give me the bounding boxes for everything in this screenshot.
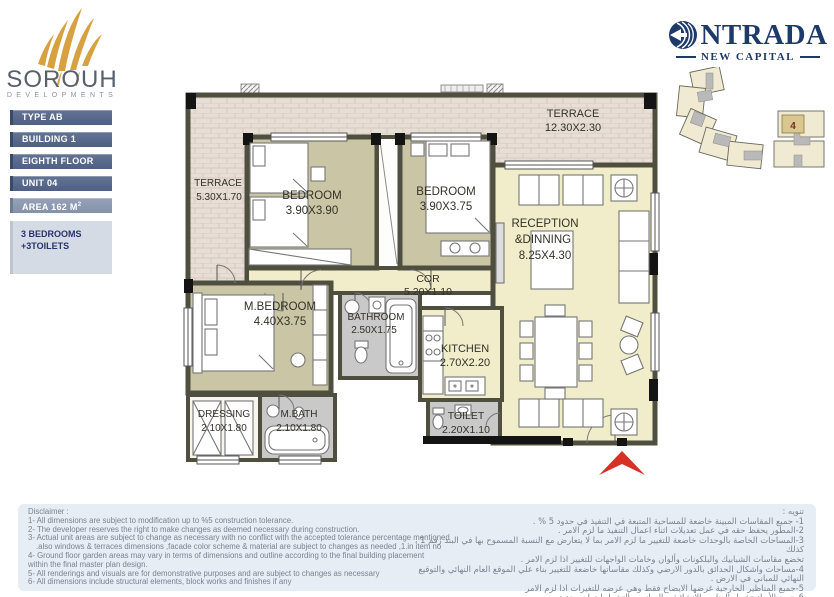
dash-right (800, 56, 820, 58)
project-logo-block: NTRADA NEW CAPITAL (664, 20, 832, 178)
plant (611, 175, 637, 201)
tv-unit (496, 223, 504, 283)
badge-type: TYPE AB (10, 110, 112, 125)
summary-line1: 3 BEDROOMS (21, 228, 112, 240)
badge-unit: UNIT 04 (10, 176, 112, 191)
label-cor-name: COR (416, 273, 440, 285)
plant (611, 409, 637, 435)
label-reception-name2: &DINNING (515, 234, 571, 246)
label-reception-dims: 8.25X4.30 (519, 250, 571, 262)
label-terrace-left-dims: 5.30X1.70 (196, 192, 242, 203)
brand-name: SOROUH (6, 66, 118, 94)
disclaimer-line-ar: 6-جميع الأبعاد تشمل العناصر الإنشائية و … (404, 593, 804, 597)
vanity (441, 241, 489, 256)
disclaimer-line: 6- All dimensions include structural ele… (28, 578, 458, 587)
label-toilet-dims: 2.20X1.10 (442, 424, 490, 436)
long-sofa (619, 211, 649, 303)
label-dressing-name: DRESSING (198, 409, 250, 420)
kitchen-sink (445, 377, 485, 395)
vent-hatch-right (487, 84, 503, 93)
project-subtitle: NEW CAPITAL (701, 51, 795, 63)
label-terrace-right-name: TERRACE (547, 108, 600, 120)
entrada-globe-icon (668, 20, 698, 50)
bed-1 (250, 143, 308, 193)
project-name: NTRADA (700, 20, 827, 50)
m-bath-sink (267, 405, 279, 417)
label-toilet-name: TOILET (448, 410, 485, 422)
summary-line2: +3TOILETS (21, 240, 112, 252)
badge-building: BUILDING 1 (10, 132, 112, 147)
label-mbath-dims: 2.10X1.80 (276, 423, 322, 434)
badge-floor: EIGHTH FLOOR (10, 154, 112, 169)
bath-wc (355, 341, 368, 363)
nightstand (311, 167, 325, 181)
dash-left (676, 56, 696, 58)
disclaimer-line-ar: 3-المساحات الخاصة بالوحدات خاضعة للتغيير… (404, 536, 804, 555)
washer (369, 297, 385, 313)
label-reception-name: RECEPTION (511, 218, 578, 230)
label-mbedroom-dims: 4.40X3.75 (254, 316, 306, 328)
key-plan-unit-number: 4 (790, 121, 796, 132)
badge-area: AREA 162 M2 (10, 198, 112, 213)
label-bedroom1-dims: 3.90X3.90 (286, 205, 338, 217)
bathtub (386, 299, 416, 373)
label-kitchen-name: KITCHEN (441, 343, 489, 355)
label-kitchen-dims: 2.70X2.20 (440, 357, 490, 369)
brochure-page: SOROUH DEVELOPMENTS TYPE AB BUILDING 1 E… (0, 0, 834, 597)
key-plan: 4 (666, 67, 830, 173)
label-bathroom-dims: 2.50X1.75 (351, 325, 397, 336)
label-bedroom1-name: BEDROOM (282, 190, 341, 202)
disclaimer-arabic: تنويه : 1- جميع المقاسات المبينة خاضعة ل… (404, 507, 804, 597)
badge-area-label: AREA 162 M (22, 202, 78, 212)
label-terrace-right-dims: 12.30X2.30 (545, 122, 601, 134)
unit-badges: TYPE AB BUILDING 1 EIGHTH FLOOR UNIT 04 … (10, 110, 112, 274)
nightstand-2 (411, 143, 424, 156)
vent-hatch-left (241, 84, 259, 93)
vent-strip (441, 85, 483, 92)
unit-summary: 3 BEDROOMS +3TOILETS (10, 221, 112, 274)
label-bathroom-name: BATHROOM (347, 312, 404, 323)
badge-area-sup: 2 (78, 202, 82, 208)
label-mbedroom-name: M.BEDROOM (244, 301, 316, 313)
entrance-arrow (599, 451, 645, 475)
disclaimer-panel: Disclaimer : 1- All dimensions are subje… (18, 504, 816, 591)
label-cor-dims: 5.20X1.10 (404, 286, 452, 298)
disclaimer-english: Disclaimer : 1- All dimensions are subje… (28, 508, 458, 587)
stool (291, 353, 305, 367)
label-bedroom2-name: BEDROOM (416, 186, 475, 198)
brand-tagline: DEVELOPMENTS (6, 92, 118, 99)
floor-plan: TERRACE 5.30X1.70 BEDROOM 3.90X3.90 BEDR… (183, 83, 663, 483)
label-bedroom2-dims: 3.90X3.75 (420, 201, 472, 213)
label-mbath-name: M.BATH (280, 409, 317, 420)
label-terrace-left-name: TERRACE (194, 178, 242, 189)
label-dressing-dims: 2.10X1.80 (201, 423, 247, 434)
